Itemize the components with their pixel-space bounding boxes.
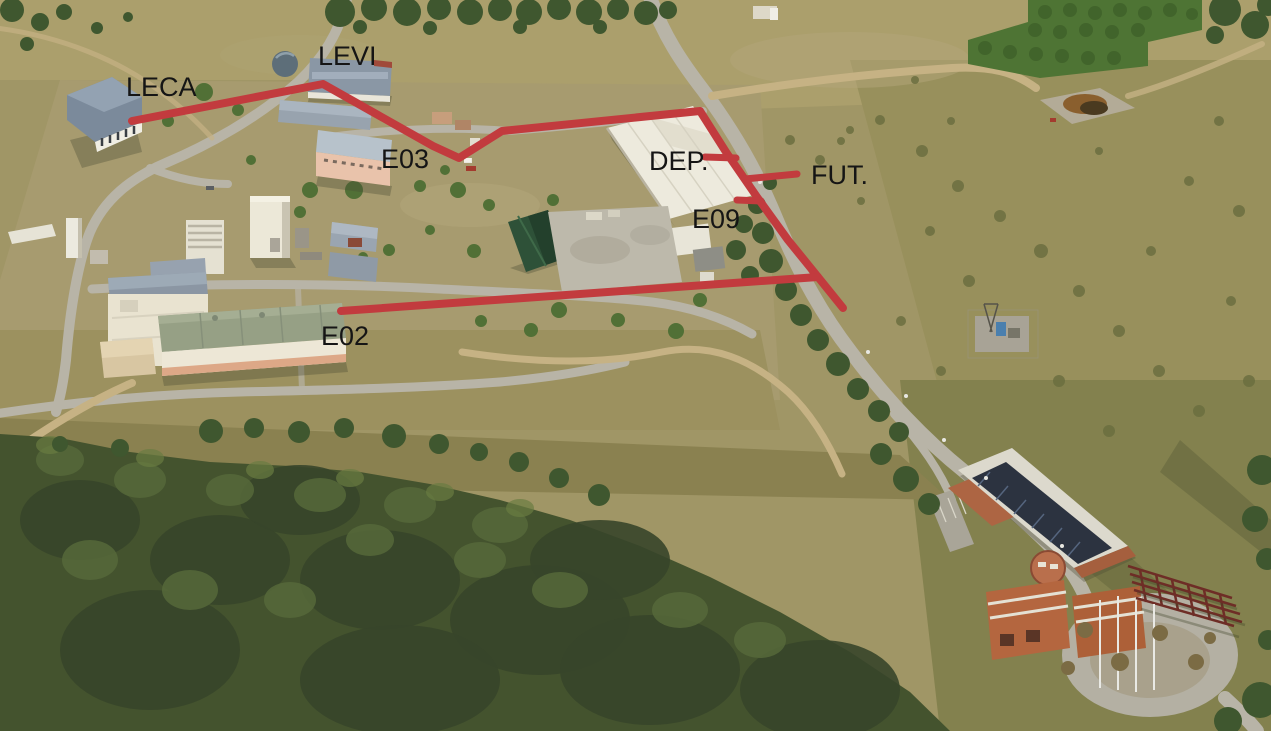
hut-north <box>753 6 778 20</box>
hq-tower <box>1031 551 1065 585</box>
aerial-photo-stage: LECA LEVI E03 DEP. FUT. E09 E02 <box>0 0 1271 731</box>
aerial-photo: LECA LEVI E03 DEP. FUT. E09 E02 <box>0 0 1271 731</box>
label-e03: E03 <box>381 144 429 174</box>
label-leca: LECA <box>126 72 197 102</box>
label-levi: LEVI <box>318 41 377 71</box>
label-e09: E09 <box>692 204 740 234</box>
building-e02-warehouse <box>158 303 348 386</box>
label-e02: E02 <box>321 321 369 351</box>
building-tan-shed <box>100 338 156 378</box>
leader-line-fut <box>745 174 797 179</box>
leader-line-dep <box>705 157 736 158</box>
leader-line-e09 <box>737 200 761 201</box>
concrete-pad <box>548 206 682 292</box>
building-tall-tower <box>250 196 296 268</box>
label-dep: DEP. <box>649 146 709 176</box>
label-fut: FUT. <box>811 160 868 190</box>
